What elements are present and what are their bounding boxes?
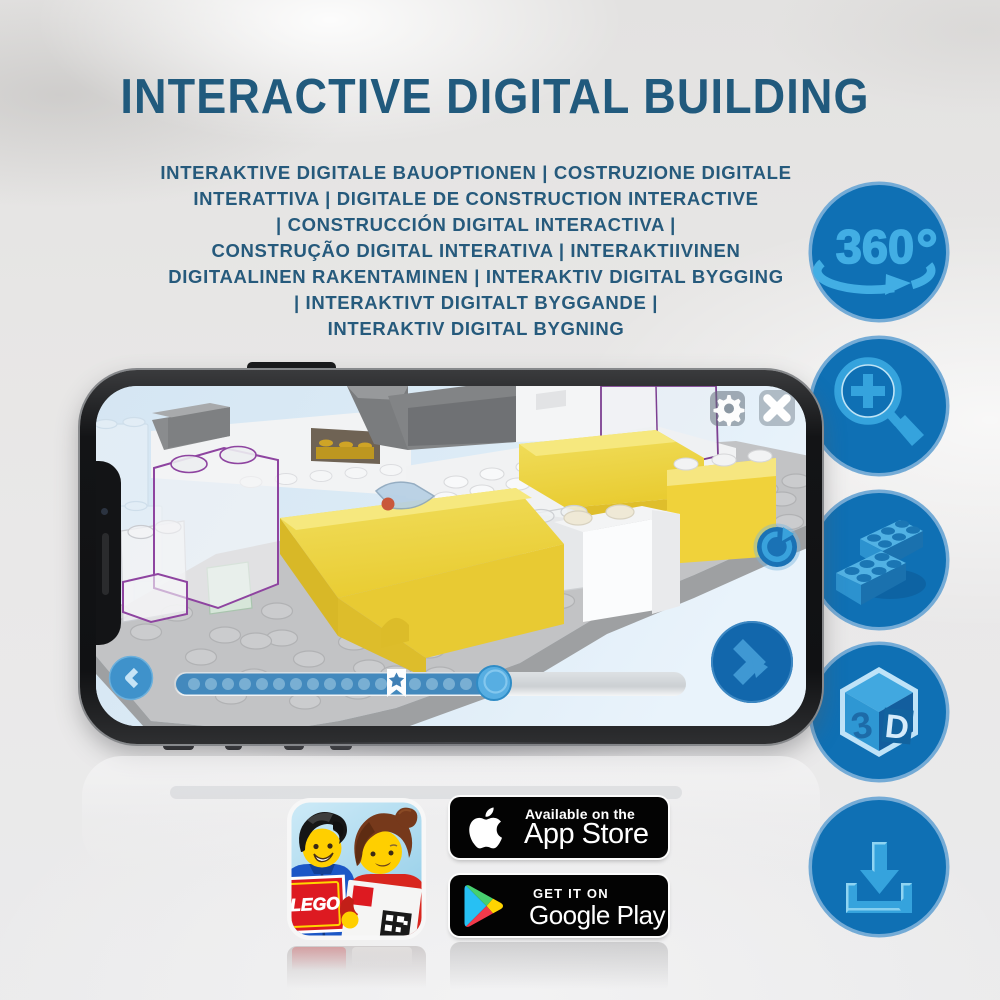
svg-text:360: 360 <box>836 220 914 273</box>
svg-text:D: D <box>883 707 911 746</box>
svg-text:LEGO: LEGO <box>290 893 341 915</box>
